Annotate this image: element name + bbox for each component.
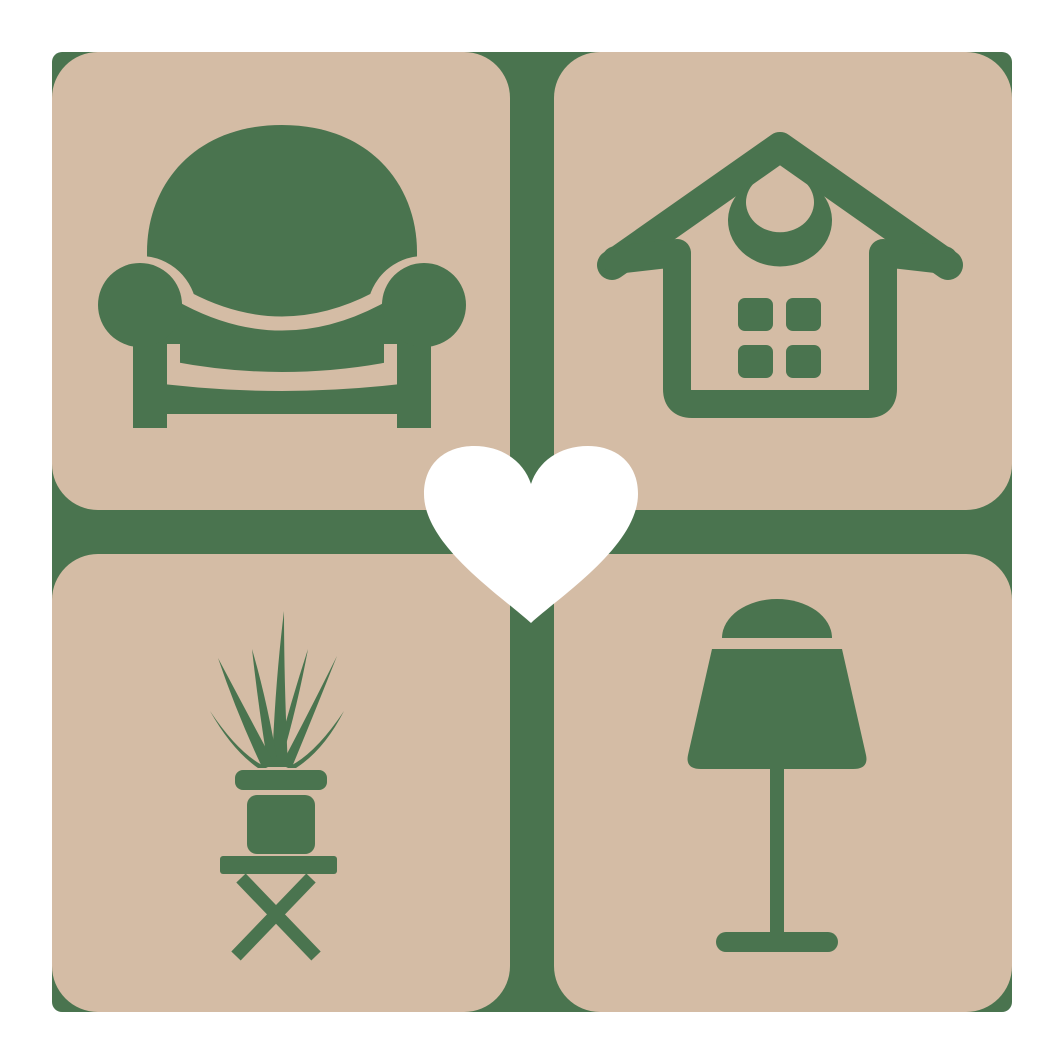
window-pane — [786, 345, 821, 378]
furniture-home-logo — [0, 0, 1063, 1063]
window-pane — [786, 298, 821, 331]
armchair-armrest-left — [98, 263, 182, 347]
pot-rim — [235, 770, 327, 790]
stool-seat — [220, 856, 337, 874]
logo-canvas — [0, 0, 1063, 1063]
lamp-base — [716, 932, 838, 952]
lamp-stem — [770, 769, 784, 939]
tile-top-right — [554, 52, 1012, 510]
pot-body — [247, 795, 315, 854]
lamp-shade — [688, 649, 867, 769]
armchair-armrest-right — [382, 263, 466, 347]
window-pane — [738, 345, 773, 378]
armchair-back — [147, 125, 417, 344]
window-pane — [738, 298, 773, 331]
